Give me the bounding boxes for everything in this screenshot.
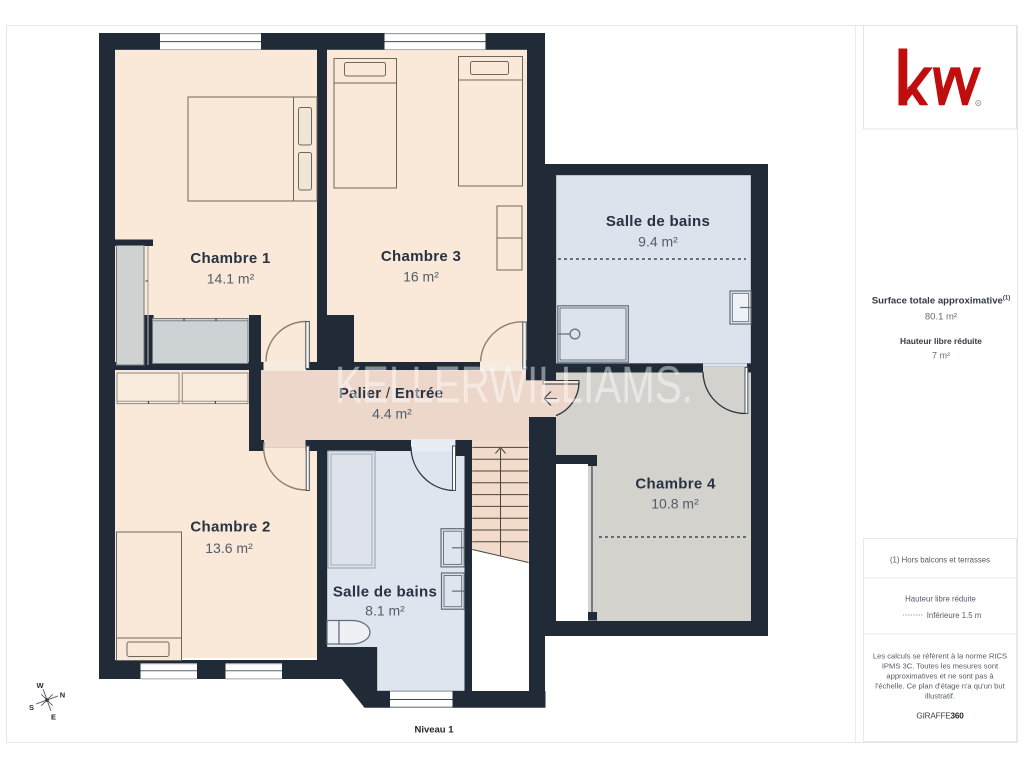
- svg-text:l'échelle. Ce plan d'étage n'a: l'échelle. Ce plan d'étage n'a qu'un but: [875, 682, 1005, 691]
- svg-text:GIRAFFE360: GIRAFFE360: [916, 712, 964, 721]
- svg-text:Chambre 3: Chambre 3: [381, 248, 461, 265]
- svg-text:Salle de bains: Salle de bains: [333, 584, 437, 601]
- svg-text:W: W: [36, 681, 44, 690]
- svg-text:8.1 m²: 8.1 m²: [365, 603, 405, 619]
- svg-text:E: E: [51, 713, 56, 722]
- svg-text:Chambre 4: Chambre 4: [635, 476, 716, 493]
- svg-text:approximatives et ne sont pas: approximatives et ne sont pas à: [886, 672, 994, 681]
- svg-text:R: R: [977, 101, 980, 106]
- svg-text:9.4 m²: 9.4 m²: [638, 234, 678, 250]
- svg-text:Inférieure 1.5 m: Inférieure 1.5 m: [927, 611, 982, 620]
- svg-text:Salle de bains: Salle de bains: [606, 213, 710, 230]
- svg-text:Surface totale approximative(1: Surface totale approximative(1): [872, 296, 1011, 307]
- svg-text:Niveau 1: Niveau 1: [414, 725, 454, 736]
- svg-text:Hauteur libre réduite: Hauteur libre réduite: [905, 595, 976, 604]
- svg-text:(1) Hors balcons et terrasses: (1) Hors balcons et terrasses: [890, 556, 990, 565]
- svg-text:Chambre 2: Chambre 2: [190, 519, 270, 536]
- svg-text:illustratif.: illustratif.: [925, 692, 955, 701]
- svg-text:13.6 m²: 13.6 m²: [205, 540, 253, 556]
- svg-text:7 m²: 7 m²: [932, 351, 950, 361]
- svg-text:16 m²: 16 m²: [403, 269, 439, 285]
- svg-text:80.1 m²: 80.1 m²: [925, 312, 957, 323]
- svg-text:KELLERWILLIAMS.: KELLERWILLIAMS.: [335, 356, 693, 414]
- svg-text:Chambre 1: Chambre 1: [190, 250, 270, 267]
- svg-text:Les calculs se réfèrent à la n: Les calculs se réfèrent à la norme RICS: [873, 652, 1007, 661]
- svg-text:14.1 m²: 14.1 m²: [207, 271, 255, 287]
- svg-text:IPMS 3C. Toutes les mesures so: IPMS 3C. Toutes les mesures sont: [882, 662, 999, 671]
- svg-text:S: S: [29, 703, 34, 712]
- svg-text:10.8 m²: 10.8 m²: [651, 496, 699, 512]
- svg-text:Hauteur libre réduite: Hauteur libre réduite: [900, 336, 982, 346]
- svg-text:N: N: [60, 690, 65, 699]
